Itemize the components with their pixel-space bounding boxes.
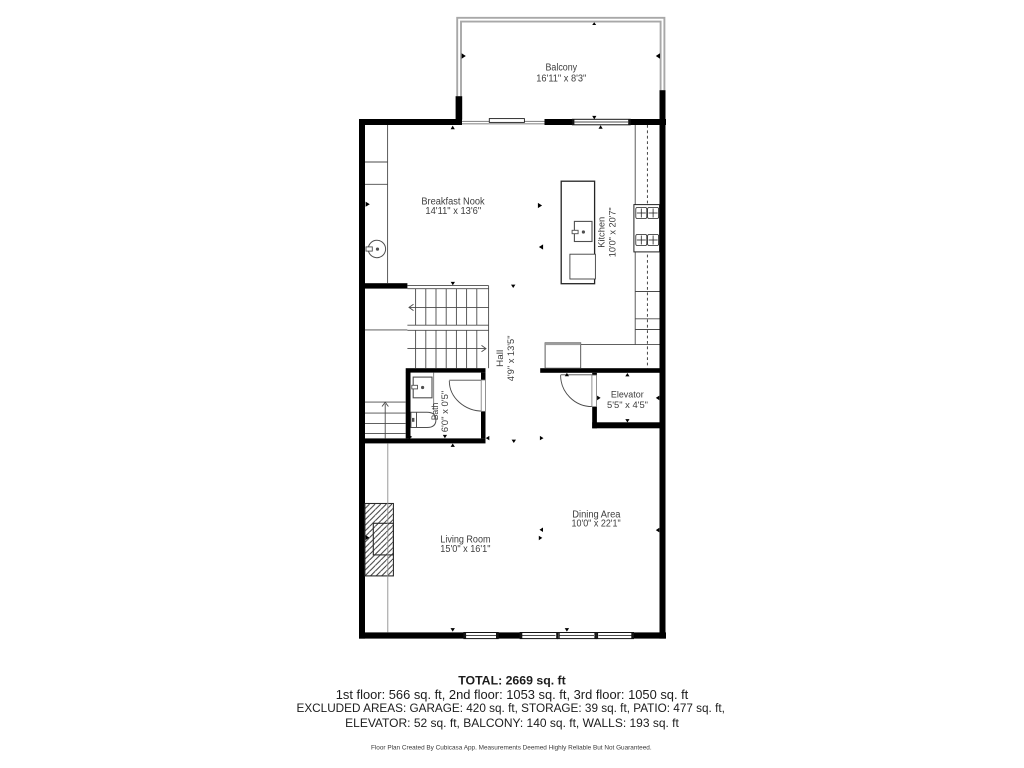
svg-text:Elevator: Elevator <box>611 389 644 399</box>
svg-text:1st floor: 566 sq. ft, 2nd flo: 1st floor: 566 sq. ft, 2nd floor: 1053 s… <box>336 687 689 702</box>
svg-text:5'5" x 4'5": 5'5" x 4'5" <box>607 400 648 410</box>
svg-text:EXCLUDED AREAS: GARAGE: 420 sq: EXCLUDED AREAS: GARAGE: 420 sq. ft, STOR… <box>297 702 725 715</box>
svg-text:Balcony: Balcony <box>546 62 578 73</box>
svg-text:6'0" x 0'5": 6'0" x 0'5" <box>440 391 450 433</box>
svg-text:ELEVATOR: 52 sq. ft, BALCONY:: ELEVATOR: 52 sq. ft, BALCONY: 140 sq. ft… <box>345 716 679 730</box>
svg-text:14'11" x 13'6": 14'11" x 13'6" <box>425 206 481 217</box>
svg-text:16'11" x 8'3": 16'11" x 8'3" <box>536 73 587 84</box>
svg-text:Hall: Hall <box>495 350 505 367</box>
svg-text:10'0" x 20'7": 10'0" x 20'7" <box>608 207 618 257</box>
svg-text:Bath: Bath <box>430 403 440 421</box>
svg-text:4'9" x 13'5": 4'9" x 13'5" <box>506 336 516 382</box>
svg-text:10'0" x 22'1": 10'0" x 22'1" <box>572 519 622 530</box>
svg-text:Floor Plan Created By Cubicasa: Floor Plan Created By Cubicasa App. Meas… <box>371 744 652 751</box>
svg-text:TOTAL: 2669 sq. ft: TOTAL: 2669 sq. ft <box>458 673 566 687</box>
svg-text:Kitchen: Kitchen <box>597 217 607 248</box>
svg-text:15'0" x 16'1": 15'0" x 16'1" <box>440 544 491 555</box>
